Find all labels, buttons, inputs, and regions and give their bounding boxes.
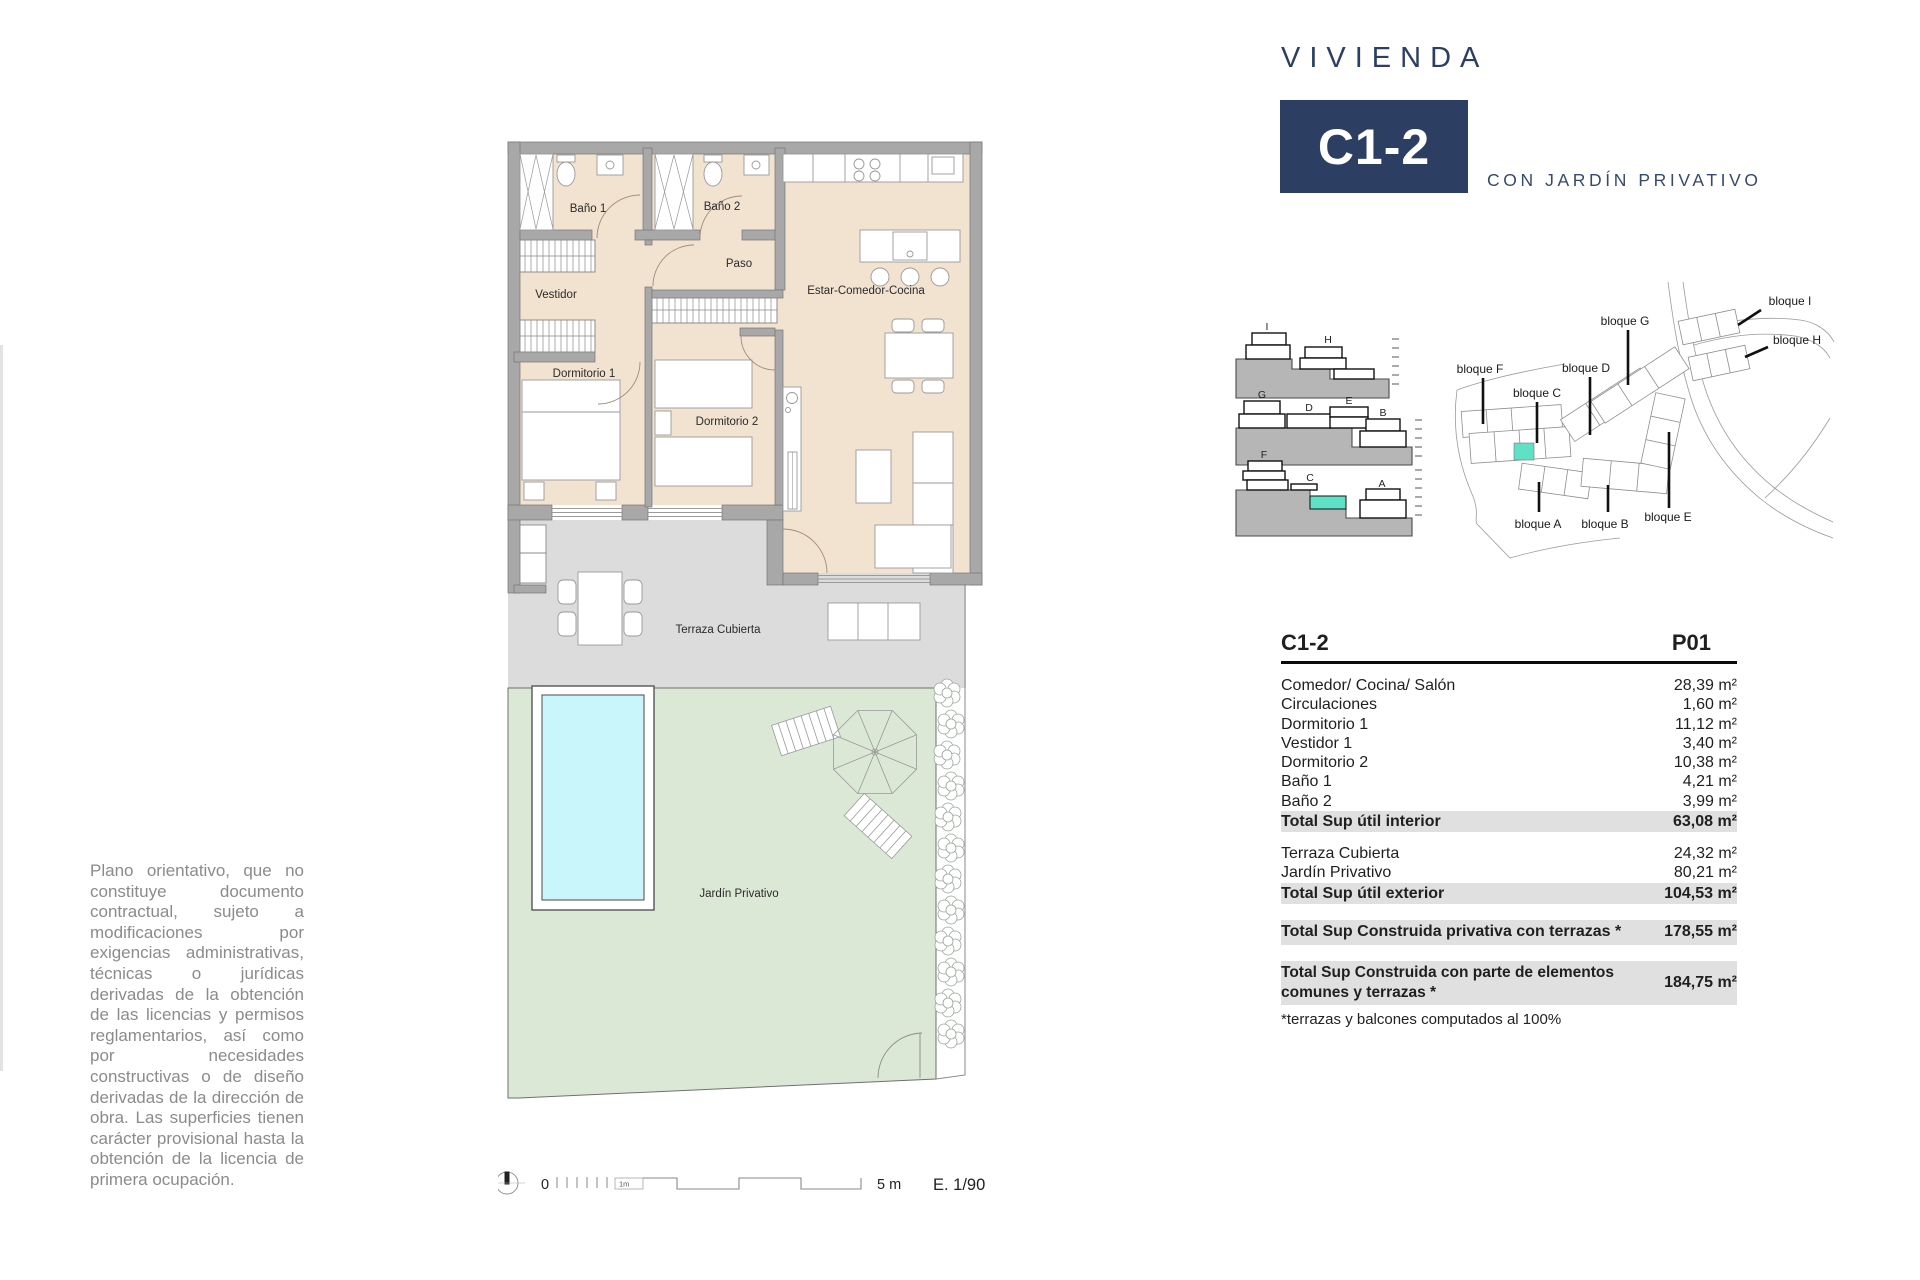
- table-header: C1-2 P01: [1281, 630, 1737, 664]
- floor-plan: Baño 1 Baño 2 Paso Vestidor Dormitorio 1…: [498, 136, 990, 1208]
- site-label-bloque-i: bloque I: [1769, 294, 1812, 308]
- row-label: Jardín Privativo: [1281, 863, 1391, 882]
- row-value: 3,40 m²: [1683, 734, 1737, 753]
- terrace-bench: [828, 603, 920, 640]
- room-label-vestidor: Vestidor: [535, 289, 577, 301]
- site-label-bloque-a: bloque A: [1515, 517, 1562, 531]
- elevation-block-label: D: [1305, 402, 1313, 414]
- north-compass-icon: [498, 1172, 525, 1195]
- row-label: Total Sup Construida privativa con terra…: [1281, 923, 1621, 941]
- elevation-block-label: I: [1266, 321, 1269, 333]
- table-row: Terraza Cubierta24,32 m²: [1281, 844, 1737, 863]
- kitchen-island: [860, 230, 960, 286]
- row-value: 3,99 m²: [1683, 792, 1737, 811]
- row-label: Dormitorio 1: [1281, 715, 1368, 734]
- table-row: Baño 23,99 m²: [1281, 792, 1737, 811]
- hedge-row: [934, 679, 964, 1048]
- table-row: Jardín Privativo80,21 m²: [1281, 863, 1737, 882]
- row-value: 4,21 m²: [1683, 772, 1737, 791]
- scale-5m-label: 5 m: [877, 1177, 901, 1193]
- highlighted-unit-elevation: [1310, 496, 1346, 509]
- areas-table: C1-2 P01 Comedor/ Cocina/ Salón28,39 m² …: [1281, 630, 1737, 1028]
- room-label-dormitorio1: Dormitorio 1: [553, 368, 616, 380]
- disclaimer-text: Plano orientativo, que no constituye doc…: [90, 861, 304, 1191]
- kitchen-counter: [783, 154, 963, 182]
- row-value: 1,60 m²: [1683, 695, 1737, 714]
- unit-subtitle: CON JARDÍN PRIVATIVO: [1487, 170, 1762, 191]
- row-label: Total Sup útil exterior: [1281, 883, 1444, 904]
- terrace-closet: [520, 525, 546, 583]
- scale-bar: 0 1m 5 m E. 1/90: [498, 1172, 985, 1195]
- elevation-block-label: G: [1258, 389, 1266, 401]
- table-row: Circulaciones1,60 m²: [1281, 695, 1737, 714]
- elevation-block-label: F: [1261, 449, 1267, 461]
- table-row: Dormitorio 210,38 m²: [1281, 753, 1737, 772]
- elevation-row1: I H: [1236, 321, 1399, 398]
- row-value: 11,12 m²: [1675, 715, 1737, 734]
- table-row: Baño 14,21 m²: [1281, 772, 1737, 791]
- row-value: 10,38 m²: [1674, 753, 1737, 772]
- scale-ratio-label: E. 1/90: [933, 1176, 985, 1194]
- row-label: Circulaciones: [1281, 695, 1377, 714]
- brand-title: VIVIENDA: [1272, 42, 1468, 75]
- row-label: Total Sup Construida con parte de elemen…: [1281, 961, 1626, 1005]
- row-label: Baño 2: [1281, 792, 1332, 811]
- elevation-block-label: H: [1324, 334, 1332, 346]
- elevation-block-label: C: [1306, 472, 1314, 484]
- row-value: 178,55 m²: [1664, 923, 1737, 941]
- highlighted-unit-siteplan: [1514, 443, 1534, 460]
- total-exterior-row: Total Sup útil exterior104,53 m²: [1281, 883, 1737, 904]
- row-label: Baño 1: [1281, 772, 1332, 791]
- scale-1m-label: 1m: [619, 1180, 629, 1189]
- row-value: 63,08 m²: [1673, 811, 1737, 832]
- table-row: Comedor/ Cocina/ Salón28,39 m²: [1281, 676, 1737, 695]
- site-label-bloque-b: bloque B: [1581, 517, 1628, 531]
- plan-sheet: VIVIENDA C1-2 CON JARDÍN PRIVATIVO: [0, 0, 1920, 1280]
- room-label-bano2: Baño 2: [704, 201, 740, 213]
- site-label-bloque-e: bloque E: [1644, 510, 1691, 524]
- room-label-paso: Paso: [726, 258, 752, 270]
- page-edge-sliver: [0, 345, 3, 1071]
- row-label: Comedor/ Cocina/ Salón: [1281, 676, 1455, 695]
- table-header-unit: C1-2: [1281, 630, 1329, 656]
- table-header-floor: P01: [1672, 630, 1711, 656]
- elevation-diagrams: I H G D E B: [1233, 316, 1433, 548]
- row-label: Vestidor 1: [1281, 734, 1352, 753]
- site-label-bloque-c: bloque C: [1513, 386, 1561, 400]
- row-value: 104,53 m²: [1664, 883, 1737, 904]
- site-plan: bloque F bloque C bloque G bloque D bloq…: [1450, 280, 1840, 575]
- room-label-jardin: Jardín Privativo: [699, 888, 778, 900]
- table-row: Dormitorio 111,12 m²: [1281, 715, 1737, 734]
- room-label-bano1: Baño 1: [570, 203, 606, 215]
- site-buildings: [1461, 309, 1750, 499]
- room-label-estar: Estar-Comedor-Cocina: [807, 285, 925, 297]
- tall-cabinet: [783, 387, 801, 511]
- unit-badge: C1-2: [1280, 100, 1468, 193]
- total-interior-row: Total Sup útil interior63,08 m²: [1281, 811, 1737, 832]
- row-value: 184,75 m²: [1664, 974, 1737, 992]
- site-label-bloque-f: bloque F: [1457, 362, 1504, 376]
- room-label-dormitorio2: Dormitorio 2: [696, 416, 759, 428]
- row-value: 24,32 m²: [1674, 844, 1737, 863]
- scale-zero-label: 0: [541, 1177, 549, 1193]
- site-label-bloque-h: bloque H: [1773, 333, 1821, 347]
- table-footnote: *terrazas y balcones computados al 100%: [1281, 1011, 1737, 1028]
- row-value: 80,21 m²: [1674, 863, 1737, 882]
- total-privativa-row: Total Sup Construida privativa con terra…: [1281, 920, 1737, 945]
- site-label-bloque-d: bloque D: [1562, 361, 1610, 375]
- row-value: 28,39 m²: [1674, 676, 1737, 695]
- table-row: Vestidor 13,40 m²: [1281, 734, 1737, 753]
- total-comunes-row: Total Sup Construida con parte de elemen…: [1281, 961, 1737, 1005]
- row-label: Total Sup útil interior: [1281, 811, 1441, 832]
- elevation-block-label: E: [1345, 395, 1352, 407]
- row-label: Terraza Cubierta: [1281, 844, 1399, 863]
- room-label-terraza: Terraza Cubierta: [675, 624, 761, 636]
- elevation-block-label: B: [1379, 407, 1386, 419]
- unit-code: C1-2: [1318, 118, 1430, 176]
- site-label-bloque-g: bloque G: [1601, 314, 1650, 328]
- elevation-block-label: A: [1378, 478, 1385, 490]
- pool: [532, 686, 654, 910]
- row-label: Dormitorio 2: [1281, 753, 1368, 772]
